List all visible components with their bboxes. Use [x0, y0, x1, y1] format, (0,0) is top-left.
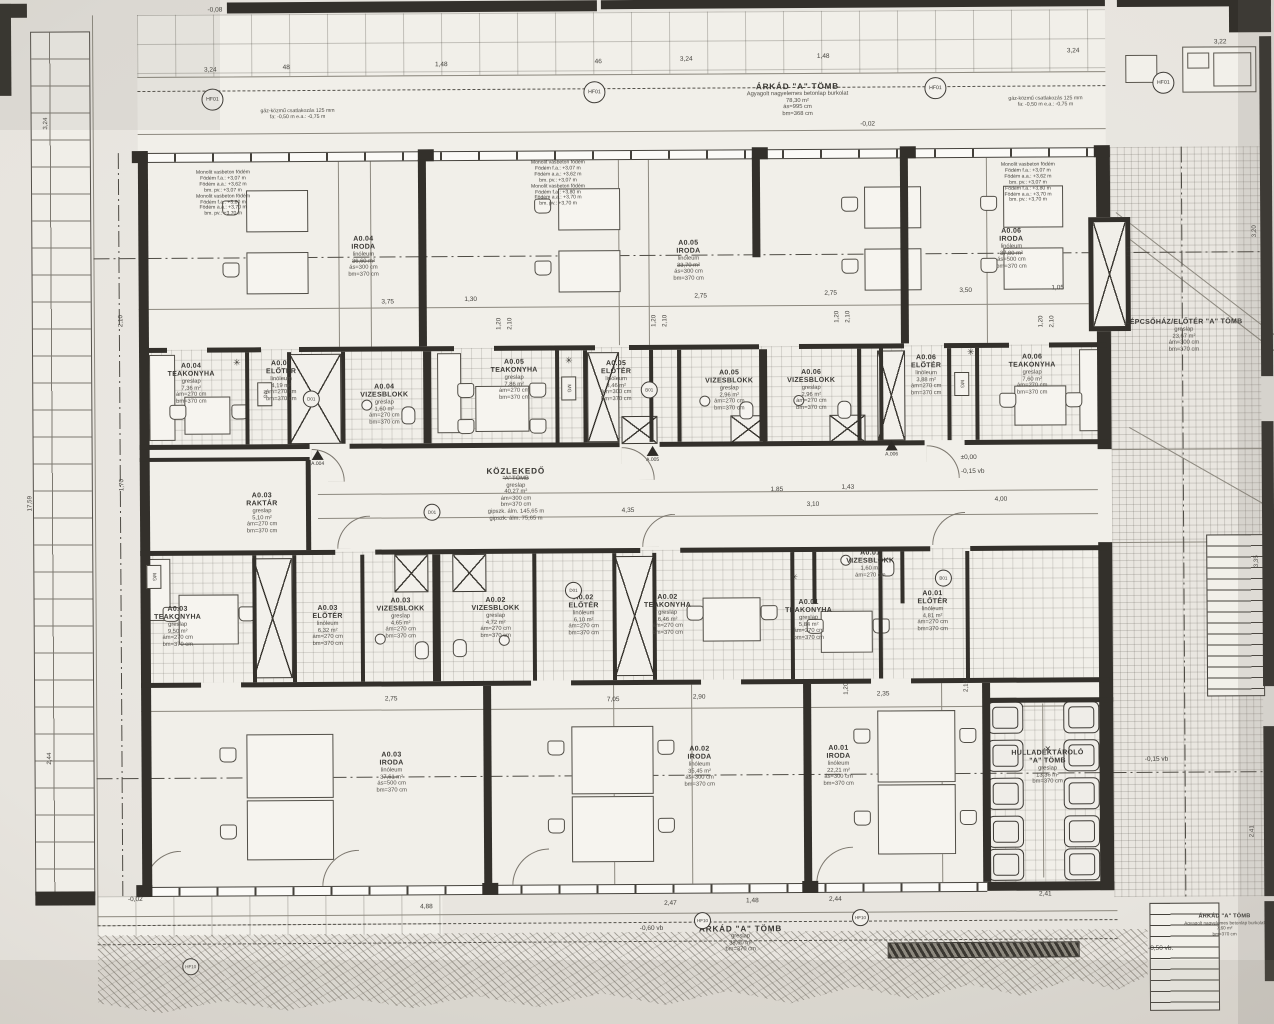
- right-edge-wall: [1259, 36, 1273, 376]
- ref-circle-hf10: HF10: [852, 909, 869, 926]
- waste-bin: [1063, 701, 1099, 733]
- room-name: TEAKONYHA: [644, 602, 691, 610]
- desk: [247, 800, 334, 861]
- chair: [761, 605, 778, 620]
- room-code: A0.01: [823, 745, 854, 753]
- chair: [853, 729, 870, 744]
- room-name: TEAKONYHA: [785, 607, 832, 615]
- waste-bin: [988, 816, 1024, 848]
- room-finish: linóleum: [684, 762, 714, 769]
- ref-circle-hf10: HF10: [182, 958, 199, 975]
- waste-bin: [987, 702, 1023, 734]
- signage-box: [1187, 52, 1209, 68]
- elevator-cross: [1093, 222, 1126, 326]
- ref-circle-hf01: HF01: [1152, 72, 1174, 94]
- level-marker: -0,15 vb: [1145, 756, 1169, 763]
- room-height: bm=370 cm: [1009, 389, 1056, 396]
- room-height: bm=370 cm: [601, 396, 631, 403]
- wall: [252, 555, 257, 682]
- room-name: ELŐTÉR: [601, 368, 632, 376]
- signage-box: [1213, 52, 1251, 86]
- room-finish: linóleum: [348, 252, 378, 259]
- wall: [140, 444, 310, 450]
- desk: [864, 248, 921, 290]
- dimension: 2,75: [385, 695, 398, 702]
- wall: [494, 345, 595, 351]
- wall: [900, 156, 909, 343]
- level-marker: -0,50 vb.: [1148, 945, 1173, 952]
- room-height: bm=370 cm: [246, 528, 277, 535]
- ref-circle-hf01: HF01: [583, 81, 605, 103]
- shaft-xbox: [452, 554, 486, 592]
- dimension: 3,24: [680, 56, 693, 63]
- room-name: VIZESBLOKK: [846, 557, 894, 565]
- room-name: VIZESBLOKK: [472, 605, 520, 613]
- room-height: bm=370 cm: [1012, 778, 1084, 785]
- mg-shaft: MG: [146, 565, 161, 589]
- room-label-hulladektarolo: HULLADÉKTÁROLÓ "A" TÖMB greslap 13,36 m²…: [1011, 749, 1083, 785]
- dimension: 2,10: [1048, 315, 1055, 327]
- room-height: ás=300 cm: [823, 774, 853, 781]
- room-label-a002-vizesblokk: A0.02 VIZESBLOKK greslap 4,72 m² ám=270 …: [471, 597, 519, 640]
- ceiling-note: gipszk. álm. 145,65 m: [487, 509, 546, 516]
- wall: [759, 349, 768, 441]
- chair: [547, 740, 564, 755]
- dimension: 2,35: [877, 690, 890, 697]
- desk: [558, 250, 620, 292]
- room-label-a001-vizesblokk: A0.01 VIZESBLOKK 1,60 m² ám=270 cm: [846, 549, 894, 578]
- room-code: A0.01: [785, 599, 832, 607]
- room-label-a001-teakonyha: A0.01 TEAKONYHA greslap 5,84 m² ám=270 c…: [785, 599, 832, 642]
- room-name: IRODA: [376, 759, 407, 767]
- waste-bin: [1064, 815, 1100, 847]
- room-height: ám=270 cm: [568, 623, 598, 630]
- room-name: TEAKONYHA: [154, 614, 201, 622]
- room-name: ELŐTÉR: [568, 602, 599, 610]
- level-marker: ±0,00: [961, 454, 977, 461]
- vent-star: ✳: [233, 358, 241, 367]
- waste-bin: [1064, 848, 1100, 880]
- pier: [132, 151, 148, 163]
- ref-circle-hf10: HF10: [694, 912, 711, 929]
- section-marker: [312, 450, 324, 460]
- vent-star: ✳: [790, 573, 798, 582]
- room-name: IRODA: [684, 754, 715, 762]
- wall: [612, 553, 617, 680]
- ref-circle-d01: D01: [565, 582, 582, 599]
- room-height: bm=370 cm: [376, 787, 406, 794]
- level-marker: -0,02: [128, 896, 143, 903]
- room-label-kozlekedo: KÖZLEKEDŐ "A" TÖMB greslap 40,27 m² ám=3…: [486, 468, 545, 523]
- stair-lobby-floor: [1110, 146, 1265, 897]
- waste-room-wall: [984, 697, 1113, 703]
- room-code: A0.05: [601, 360, 632, 368]
- room-code: A0.03: [312, 605, 343, 613]
- dimension: 3,22: [1214, 38, 1227, 45]
- dimension: 3,10: [807, 501, 820, 508]
- room-finish: linóleum: [568, 610, 598, 617]
- room-label-a006-teakonyha: A0.06 TEAKONYHA greslap 7,60 m² ám=270 c…: [1009, 353, 1056, 396]
- wall: [583, 350, 588, 442]
- room-height: bm=370 cm: [823, 780, 853, 787]
- gas-note-line: fa: -0,50 m e.a.: -0,75 m: [1008, 101, 1082, 107]
- ref-circle-b01: B01: [641, 381, 658, 398]
- kitchen-table: [703, 597, 761, 641]
- dimension: 3,24: [42, 118, 49, 130]
- room-name: KÖZLEKEDŐ: [486, 468, 545, 476]
- room-label-a004-vizesblokk: A0.04 VIZESBLOKK greslap 1,60 m² ám=270 …: [360, 383, 408, 426]
- dimension: 2,10: [844, 311, 851, 323]
- room-height: bm=370 cm: [377, 633, 425, 640]
- dimension: 2,90: [693, 694, 706, 701]
- room-code: A0.04: [168, 363, 215, 371]
- ramp-xbox: [252, 558, 293, 678]
- wall: [292, 555, 297, 682]
- dimension: 2,41: [1248, 825, 1255, 837]
- room-name: ELŐTÉR: [917, 598, 948, 606]
- slab-note: Monolit vasbeton födém Födém f.a.: +3,07…: [531, 160, 585, 208]
- wall: [857, 349, 862, 441]
- wall: [812, 552, 816, 604]
- vent-star: ✳: [565, 356, 573, 365]
- wall: [975, 348, 980, 440]
- wall: [341, 352, 346, 444]
- ref-circle-b01: B01: [935, 570, 952, 587]
- slab-note-line: bm. pv.: +3,70 m: [196, 212, 250, 218]
- room-label-a003-raktar: A0.03 RAKTÁR greslap 5,10 m² ám=270 cm b…: [246, 492, 278, 535]
- toilet: [453, 639, 467, 657]
- room-height: ám=270 cm: [246, 521, 277, 528]
- elevator-shaft: [1088, 217, 1131, 331]
- room-height: ás=300 cm: [684, 775, 714, 782]
- dimension: 4,35: [622, 507, 635, 514]
- chair: [457, 383, 474, 398]
- dimension: 1,30: [464, 296, 477, 303]
- room-code: A0.04: [348, 236, 379, 244]
- chair: [854, 811, 871, 826]
- room-code: A0.04: [266, 360, 297, 368]
- dimension: 2,10: [506, 318, 513, 330]
- wall: [970, 545, 1108, 551]
- room-name: IRODA: [673, 248, 704, 256]
- room-label-a003-teakonyha: A0.03 TEAKONYHA greslap 9,50 m² ám=270 c…: [154, 606, 201, 649]
- chair: [658, 818, 675, 833]
- pier: [1094, 145, 1110, 157]
- east-wall-lower: [1098, 542, 1114, 890]
- wall: [360, 555, 365, 682]
- room-code: A0.02: [644, 594, 691, 602]
- wall: [1049, 342, 1107, 347]
- room-finish: linóleum: [601, 376, 631, 383]
- level-marker: -0,08: [207, 7, 222, 14]
- chair: [841, 197, 858, 212]
- wall: [423, 351, 432, 443]
- dimension: 1,85: [771, 486, 784, 493]
- room-finish: linóleum: [911, 370, 941, 377]
- dimension: 1,20: [650, 315, 657, 327]
- room-height: ám=300 cm: [601, 389, 631, 396]
- gas-note: gáz-közmű csatlakozás 125 mm fa: -0,50 m…: [1008, 95, 1082, 107]
- wall: [141, 683, 201, 688]
- slab-note: Monolit vasbeton födém Födém f.a.: +3,07…: [1001, 162, 1055, 204]
- chair: [169, 405, 186, 420]
- waste-bin: [988, 849, 1024, 881]
- dimension: 1,48: [817, 53, 830, 60]
- toilet: [415, 641, 429, 659]
- room-finish: linóleum: [312, 621, 342, 628]
- room-height: bm=370 cm: [472, 632, 520, 639]
- chair: [534, 261, 551, 276]
- room-height: bm=370 cm: [917, 626, 947, 633]
- room-finish: linóleum: [996, 244, 1026, 251]
- room-label-a001-eloter: A0.01 ELŐTÉR linóleum 4,81 m² ám=270 cm …: [917, 590, 948, 633]
- room-height: bm=370 cm: [313, 641, 343, 648]
- ref-circle-hf01: HF01: [201, 89, 223, 111]
- desk: [572, 796, 654, 862]
- room-code: A0.02: [684, 746, 715, 754]
- room-finish: linóleum: [376, 767, 406, 774]
- room-height: ám=270 cm: [313, 634, 343, 641]
- dimension: 3,35: [1253, 555, 1260, 567]
- dimension: 7,05: [607, 696, 620, 703]
- room-label-a002-teakonyha: A0.02 TEAKONYHA greslap 6,46 m² ám=270 c…: [644, 594, 691, 637]
- room-label-a003-iroda: A0.03 IRODA linóleum 37,61 m² ás=500 cm …: [376, 751, 407, 794]
- room-name: ELŐTÉR: [266, 368, 297, 376]
- room-name: TEAKONYHA: [168, 371, 215, 379]
- dimension: 2,75: [694, 293, 707, 300]
- axis-line: [118, 153, 124, 896]
- room-finish: linóleum: [823, 761, 853, 768]
- dimension: 1,48: [746, 897, 759, 904]
- south-wall-solid: [987, 881, 1114, 891]
- wall: [982, 683, 991, 882]
- room-label-a003-eloter: A0.03 ELŐTÉR linóleum 6,32 m² ám=270 cm …: [312, 605, 343, 648]
- wall: [139, 348, 167, 353]
- room-label-a001-iroda: A0.01 IRODA linóleum 22,21 m² ás=300 cm …: [823, 745, 854, 788]
- room-height: bm=370 cm: [673, 275, 703, 282]
- wall: [432, 554, 441, 681]
- dimension: 1,20: [1037, 315, 1044, 327]
- dimension: 1,20: [843, 683, 850, 695]
- desk: [246, 252, 308, 294]
- chair: [960, 810, 977, 825]
- room-name: VIZESBLOKK: [787, 377, 835, 385]
- elevator-label: LIFT: [1124, 247, 1130, 257]
- dimension: 2,10: [117, 315, 124, 327]
- room-name: RAKTÁR: [246, 500, 277, 508]
- room-height: bm=370 cm: [266, 396, 296, 403]
- dimension: 1,70: [118, 479, 125, 491]
- wall: [799, 343, 904, 349]
- room-height: bm=370 cm: [360, 419, 408, 426]
- room-height: bm=370 cm: [168, 398, 215, 405]
- left-strip-end: [35, 891, 95, 905]
- chair: [841, 259, 858, 274]
- room-height: bm=370 cm: [787, 405, 835, 412]
- section-label: A.006: [885, 451, 898, 457]
- scan-edge: [601, 0, 1105, 9]
- room-name: VIZESBLOKK: [360, 391, 408, 399]
- room-label-a004-eloter: A0.04 ELŐTÉR linóleum 4,19 m² ám=270 cm …: [266, 360, 297, 403]
- room-height: bm=370 cm: [684, 781, 714, 788]
- chair: [457, 419, 474, 434]
- room-height: ás=500 cm: [376, 781, 406, 788]
- dimension: 46: [595, 58, 602, 65]
- threshold-bar: [888, 941, 1080, 958]
- dimension: 3,75: [381, 298, 394, 305]
- chair: [529, 419, 546, 434]
- room-finish: Agyagolt nagyelemes betonlap burkolat: [747, 91, 849, 98]
- room-name: TEAKONYHA: [491, 367, 538, 375]
- right-edge-wall: [1263, 726, 1274, 896]
- room-height: ás=300 cm: [348, 265, 378, 272]
- room-height: bm=370 cm: [491, 394, 538, 401]
- dimension: 1,20: [833, 311, 840, 323]
- level-marker: -0,15 vb: [961, 468, 985, 475]
- room-name: VIZESBLOKK: [377, 605, 425, 613]
- room-height: ám=270 cm: [917, 619, 947, 626]
- room-label-a003-vizesblokk: A0.03 VIZESBLOKK greslap 4,65 m² ám=270 …: [376, 597, 424, 640]
- scan-edge: [227, 0, 597, 13]
- room-height: ám=270 cm: [846, 572, 894, 579]
- chair: [980, 196, 997, 211]
- room-height: bm=368 cm: [747, 110, 849, 117]
- room-finish: linóleum: [917, 606, 947, 613]
- wall: [879, 348, 884, 440]
- room-code: A0.03: [376, 751, 407, 759]
- chair: [1065, 392, 1082, 407]
- desk: [878, 784, 956, 854]
- room-name: IRODA: [823, 753, 854, 761]
- scan-edge: [1229, 0, 1271, 32]
- room-height: ás=300 cm: [673, 269, 703, 276]
- ref-circle-d01: D01: [303, 390, 320, 407]
- slab-note: Monolit vasbeton födém Födém f.a.: +3,07…: [196, 170, 250, 218]
- room-height: bm=370 cm: [568, 630, 598, 637]
- dimension: 2,47: [664, 900, 677, 907]
- right-edge-wall: [1264, 901, 1274, 981]
- room-label-a006-iroda: A0.06 IRODA linóleum 37,80 m² ás=500 cm …: [996, 228, 1027, 271]
- room-name: HULLADÉKTÁROLÓ: [1011, 749, 1083, 757]
- room-label-a006-eloter: A0.06 ELŐTÉR linóleum 3,88 m² ám=270 cm …: [911, 354, 942, 397]
- mg-shaft: MG: [561, 376, 576, 400]
- wall: [245, 352, 250, 444]
- room-height: bm=370 cm: [911, 390, 941, 397]
- shaft-xbox: [394, 554, 428, 592]
- room-height: bm=370 cm: [705, 405, 753, 412]
- room-label-arkad-bottom: ÁRKÁD "A" TÖMB greslap 38,60 m² bm=370 c…: [699, 925, 782, 953]
- room-code: A0.06: [911, 354, 942, 362]
- chair: [548, 818, 565, 833]
- dimension: 48: [283, 64, 290, 71]
- level-marker: -0,02: [860, 121, 875, 128]
- wall: [483, 686, 492, 885]
- room-label-a005-iroda: A0.05 IRODA linóleum 33,70 m² ás=300 cm …: [673, 240, 704, 283]
- right-edge-wall: [1261, 421, 1274, 686]
- chair: [220, 824, 237, 839]
- dimension: 2,10: [963, 680, 970, 692]
- room-height: bm=370 cm: [1125, 346, 1242, 353]
- room-height: bm=370 cm: [644, 629, 691, 636]
- room-code: A0.05: [673, 240, 704, 248]
- room-code: A0.01: [917, 590, 948, 598]
- dimension: 2,44: [46, 753, 53, 765]
- mg-shaft: MG: [954, 372, 969, 396]
- room-height: bm=370 cm: [996, 263, 1026, 270]
- slab-note-line: bm. pv.: +3,70 m: [531, 202, 585, 208]
- room-name: ÁRKÁD "A" TÖMB: [699, 925, 782, 934]
- room-label-lepcsohaz: LÉPCSŐHÁZ/ELŐTÉR "A" TÖMB greslap 23,67 …: [1125, 318, 1242, 353]
- dimension: 2,75: [824, 290, 837, 297]
- room-label-a004-teakonyha: A0.04 TEAKONYHA greslap 7,36 m² ám=270 c…: [168, 363, 215, 406]
- room-height: ás=500 cm: [996, 257, 1026, 264]
- chair: [959, 728, 976, 743]
- room-finish: linóleum: [266, 376, 296, 383]
- desk: [246, 190, 308, 232]
- desk: [246, 734, 333, 799]
- room-label-arkad-top: ÁRKÁD "A" TÖMB Agyagolt nagyelemes beton…: [747, 83, 849, 118]
- floorplan-scan: LIFT: [0, 0, 1274, 1024]
- room-height: ám=270 cm: [911, 383, 941, 390]
- wall: [947, 348, 952, 440]
- room-code: A0.05: [491, 359, 538, 367]
- wall: [555, 350, 560, 442]
- room-label-a002-iroda: A0.02 IRODA linóleum 35,45 m² ás=300 cm …: [684, 746, 715, 789]
- wall: [571, 680, 701, 686]
- room-label-a002-eloter: A0.02 ELŐTÉR linóleum 6,10 m² ám=270 cm …: [568, 594, 599, 637]
- section-marker: [647, 446, 659, 456]
- room-code: A0.06: [996, 228, 1027, 236]
- room-height: bm=370 cm: [154, 641, 201, 648]
- dimension: 17,59: [26, 496, 33, 512]
- wall: [803, 684, 812, 883]
- ref-circle-d01: D01: [423, 504, 440, 521]
- dimension: 1,20: [495, 318, 502, 330]
- dimension: 2,41: [1039, 890, 1052, 897]
- room-label-a004-iroda: A0.04 IRODA linóleum 36,60 m² ás=300 cm …: [348, 236, 379, 279]
- floorplan-drawing: LIFT: [0, 0, 1274, 1024]
- room-label-a005-eloter: A0.05 ELŐTÉR linóleum 3,46 m² ám=300 cm …: [601, 360, 632, 403]
- room-label-a005-vizesblokk: A0.05 VIZESBLOKK greslap 2,96 m² ám=270 …: [705, 369, 753, 412]
- wall: [418, 159, 427, 346]
- room-label-a006-vizesblokk: A0.06 VIZESBLOKK greslap 2,96 m² ám=270 …: [787, 369, 835, 412]
- slab-note-line: bm. pv.: +3,70 m: [1001, 198, 1055, 204]
- section-marker: [886, 440, 898, 450]
- wall: [965, 439, 1108, 445]
- room-height: bm=370 cm: [348, 271, 378, 278]
- room-label-arkad-corner: ÁRKÁD "A" TÖMB Agyagolt nagyelemes beton…: [1184, 912, 1265, 937]
- dimension: 3,50: [959, 287, 972, 294]
- room-name: IRODA: [996, 236, 1027, 244]
- room-height: ám=270 cm: [266, 389, 296, 396]
- dimension: 3,20: [1251, 225, 1258, 237]
- room-label-a005-teakonyha: A0.05 TEAKONYHA greslap 7,86 m² ám=270 c…: [491, 359, 538, 402]
- chair: [980, 258, 997, 273]
- storage-wall: [306, 460, 312, 550]
- wall: [207, 347, 261, 352]
- chair: [657, 740, 674, 755]
- dimension: 4,88: [420, 903, 433, 910]
- wall: [532, 554, 537, 681]
- room-height: bm=370 cm: [1184, 931, 1264, 937]
- dimension: 4,00: [995, 496, 1008, 503]
- wall: [677, 350, 682, 442]
- chair: [222, 262, 239, 277]
- level-marker: -0,60 vb: [640, 925, 664, 932]
- left-walkway-strip: [30, 31, 95, 895]
- scan-edge: [0, 4, 11, 96]
- room-finish: linóleum: [673, 256, 703, 263]
